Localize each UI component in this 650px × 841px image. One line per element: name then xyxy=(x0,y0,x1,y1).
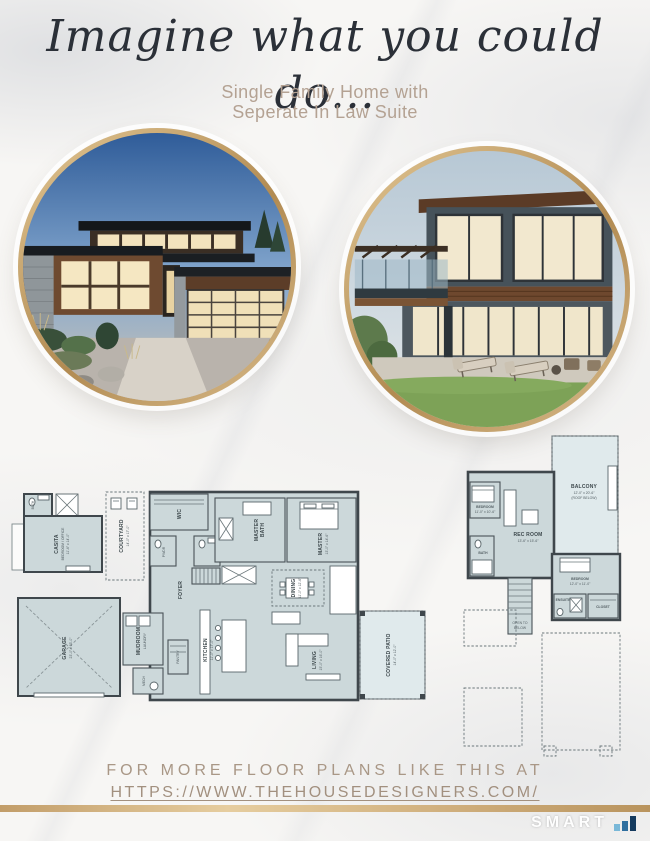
room-label-bedroom2: BEDROOM xyxy=(571,577,589,581)
wic: WIC xyxy=(150,494,208,530)
room-label-laundry: LAUNDRY xyxy=(143,632,147,649)
bedroom-1: BEDROOM 11'-0" x 10'-6" xyxy=(470,482,500,518)
room-sub-casita: BEDROOM / OFFICE xyxy=(61,527,65,561)
pantry: PANTRY xyxy=(168,640,188,674)
bar-chart-icon xyxy=(612,816,636,831)
website-link[interactable]: HTTPS://WWW.THEHOUSEDESIGNERS.COM/ xyxy=(110,784,539,801)
mudroom-laundry: MUDROOM LAUNDRY xyxy=(123,613,163,665)
room-label-living: LIVING xyxy=(312,651,318,669)
room-label-closet: CLOSET xyxy=(596,605,611,609)
upper-closet: CLOSET xyxy=(588,594,618,618)
room-dims-bedroom2: 12'-0" x 11'-0" xyxy=(570,582,591,586)
room-label-masterbath-2: BATH xyxy=(260,523,266,538)
photo-ring-left xyxy=(18,128,296,406)
room-label-upper-bath: BATH xyxy=(478,551,488,555)
house-backyard-illustration xyxy=(349,151,625,427)
room-dims-garage: 23'-0" x 23'-0" xyxy=(69,637,73,659)
room-label-dining: DINING xyxy=(291,579,297,598)
pinterest-graphic: Imagine what you could do... Single Fami… xyxy=(0,0,650,841)
subtitle-line-1: Single Family Home with xyxy=(0,82,650,102)
room-dims-living: 15'-0" x 16'-0" xyxy=(319,649,323,671)
courtyard: COURTYARD 14'-0" x 17'-0" xyxy=(106,492,144,580)
room-label-bedroom1: BEDROOM xyxy=(476,505,494,509)
room-label-mech: MECH xyxy=(142,675,146,686)
footer-url: HTTPS://WWW.THEHOUSEDESIGNERS.COM/ xyxy=(0,784,650,802)
room-label-kitchen: KITCHEN xyxy=(203,638,209,662)
footer-text: FOR MORE FLOOR PLANS LIKE THIS AT xyxy=(0,762,650,780)
logo-bar-dark xyxy=(630,816,636,831)
upper-floor-plan: BALCONY 12'-0" x 20'-6" (ROOF BELOW) BED… xyxy=(452,428,648,762)
main-floor-plan: CASITA BEDROOM / OFFICE 11'-6" x 14'-0" … xyxy=(10,478,433,713)
room-label-courtyard: COURTYARD xyxy=(119,519,125,552)
foyer: FOYER xyxy=(178,581,184,599)
casita-suite: CASITA BEDROOM / OFFICE 11'-6" x 14'-0" … xyxy=(12,494,102,572)
room-label-pantry: PANTRY xyxy=(176,650,180,664)
house-exterior-dusk-photo xyxy=(23,133,291,401)
balcony: BALCONY 12'-0" x 20'-6" (ROOF BELOW) xyxy=(552,436,618,554)
room-dims-recroom: 13'-6" x 15'-6" xyxy=(518,539,540,543)
room-dims-master: 13'-0" x 14'-6" xyxy=(325,533,329,555)
subtitle-line-2: Seperate In Law Suite xyxy=(0,102,650,122)
master-bath: MASTER BATH xyxy=(215,498,285,562)
room-label-foyer: FOYER xyxy=(178,581,184,599)
photo-ring-right xyxy=(344,146,630,432)
house-exterior-dusk-illustration xyxy=(23,133,291,401)
room-label-pwdr: PWDR xyxy=(162,546,166,557)
mech-room: MECH xyxy=(133,668,163,694)
room-dims-kitchen: 11'-0" x 17'-0" xyxy=(210,639,214,660)
room-label-garage: GARAGE xyxy=(62,636,68,660)
room-dims-dining: 11'-0" x 12'-6" xyxy=(298,577,302,598)
master-closet xyxy=(222,566,256,584)
ensuite: ENSUITE xyxy=(554,594,586,618)
master-bedroom: MASTER 13'-0" x 14'-6" xyxy=(287,498,356,562)
upper-bath: BATH xyxy=(470,536,494,576)
logo-bar-mid xyxy=(622,821,628,831)
upper-stairs: OPEN TO BELOW xyxy=(508,578,532,634)
room-dims-balcony: 12'-0" x 20'-6" xyxy=(574,491,596,495)
room-note-balcony: (ROOF BELOW) xyxy=(571,496,596,500)
house-backyard-photo xyxy=(349,151,625,427)
powder-room: PWDR xyxy=(150,536,176,566)
logo-bar-light xyxy=(614,824,620,831)
room-dims-bedroom1: 11'-0" x 10'-6" xyxy=(475,510,496,514)
room-label-ensuite: ENSUITE xyxy=(556,598,571,602)
room-label-stairs-1: OPEN TO xyxy=(512,621,527,625)
covered-patio: COVERED PATIO 14'-0" x 12'-0" xyxy=(360,611,425,699)
room-label-casita-bath: BATH xyxy=(31,500,35,509)
garage: GARAGE 23'-0" x 23'-0" xyxy=(18,598,120,697)
room-label-wic: WIC xyxy=(177,509,183,520)
lower-level-outline xyxy=(464,610,620,756)
page-subtitle: Single Family Home with Seperate In Law … xyxy=(0,82,650,122)
smart-logo: SMART xyxy=(531,815,636,831)
room-label-balcony: BALCONY xyxy=(571,484,598,490)
room-dims-casita: 11'-6" x 14'-0" xyxy=(66,533,70,554)
smart-logo-text: SMART xyxy=(531,815,608,831)
stairs xyxy=(192,568,220,584)
room-label-casita: CASITA xyxy=(54,534,60,554)
room-dims-patio: 14'-0" x 12'-0" xyxy=(393,644,397,666)
room-dims-courtyard: 14'-0" x 17'-0" xyxy=(126,525,130,547)
room-label-master: MASTER xyxy=(318,533,324,556)
room-label-mudroom: MUDROOM xyxy=(136,627,142,655)
gold-divider-bar xyxy=(0,805,650,812)
room-label-patio: COVERED PATIO xyxy=(386,633,392,676)
room-label-recroom: REC ROOM xyxy=(513,532,542,538)
